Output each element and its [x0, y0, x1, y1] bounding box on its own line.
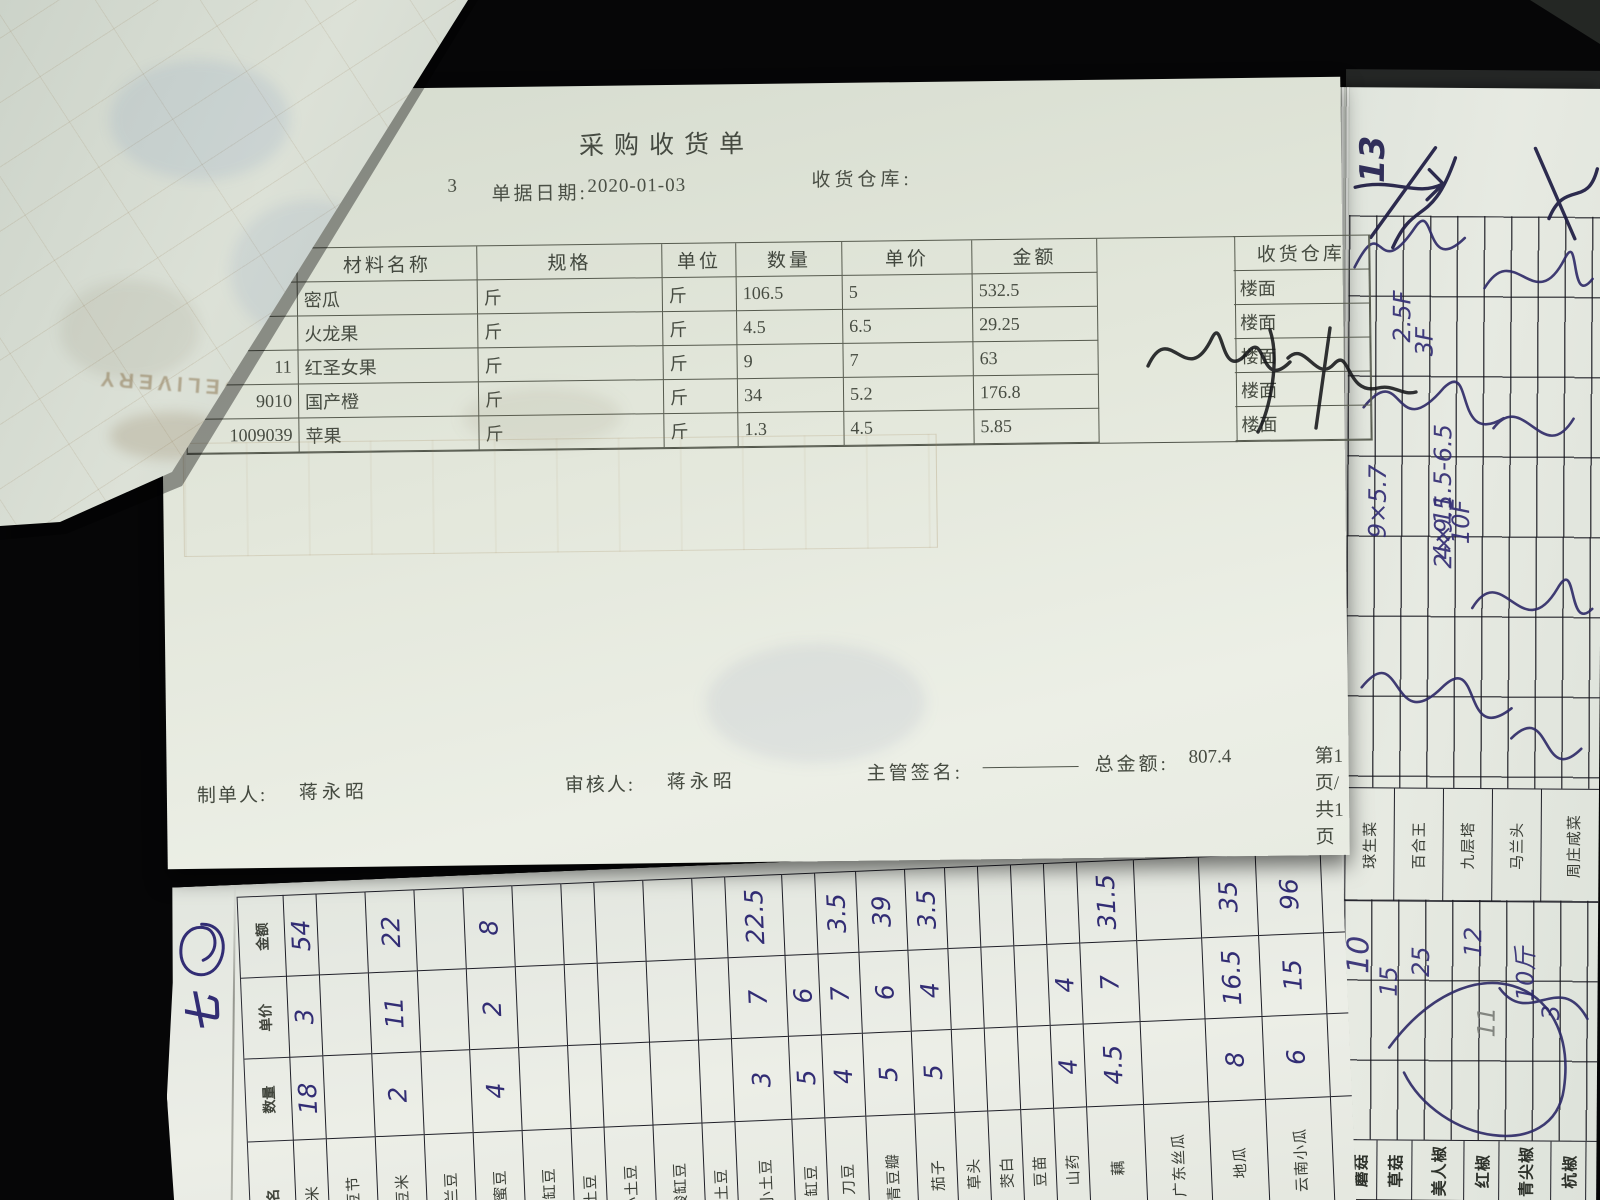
- maker-name: 蒋永昭: [299, 777, 368, 805]
- warehouse-label: 收货仓库:: [811, 164, 913, 192]
- date-label: 单据日期:: [491, 178, 588, 206]
- qty-handwriting: 4.5: [1084, 1021, 1143, 1106]
- produce-name: 青豆瓣: [881, 1152, 904, 1200]
- auditor-name: 蒋永昭: [667, 766, 736, 794]
- price-handwriting: 6: [859, 950, 910, 1033]
- produce-name: 玉米: [301, 1184, 323, 1200]
- produce-name-cell: 山药: [1055, 1106, 1092, 1200]
- qty-handwriting: [568, 1044, 603, 1128]
- produce-name: 豆苗: [1029, 1154, 1051, 1187]
- amount-handwriting: 39: [856, 869, 907, 952]
- produce-name-cell: 地瓜: [1209, 1099, 1270, 1200]
- qty-handwriting: 5: [789, 1034, 824, 1118]
- qty-handwriting: 5: [911, 1029, 954, 1114]
- produce-name: 酸缸豆: [669, 1161, 692, 1200]
- price-handwriting: [418, 968, 469, 1051]
- amount-handwriting: 22.5: [725, 874, 784, 957]
- produce-name-cell: 小土豆: [605, 1125, 658, 1200]
- signature-blank-line: [982, 752, 1078, 768]
- receipt-title: 采购收货单: [579, 124, 754, 162]
- produce-name-cell: 广东丝瓜: [1144, 1101, 1213, 1200]
- price-handwriting: 7: [818, 952, 861, 1035]
- produce-name-cell: 酸缸豆: [654, 1123, 707, 1200]
- produce-table-strips: 54 3 18 玉米 毛豆节 22 11 2 毛豆米 荷兰豆 8: [283, 851, 1351, 1200]
- produce-name: 茄子: [926, 1158, 948, 1191]
- header-warehouse: 收货仓库: [1233, 235, 1369, 271]
- qty-handwriting: 3: [732, 1036, 791, 1121]
- produce-name: 土豆: [710, 1167, 732, 1200]
- produce-name-cell: 甜蜜豆: [474, 1130, 527, 1200]
- header-unit: 单位: [662, 243, 736, 278]
- produce-name-cell: 豆苗: [1022, 1108, 1059, 1200]
- auditor-label: 审核人:: [565, 769, 636, 797]
- produce-name: 荷兰豆: [440, 1171, 463, 1200]
- cell-material: 国产橙: [299, 382, 479, 418]
- photo-of-paper-documents: 球生菜百合王九层塔马兰头周庄咸菜芦荟广东芥兰广东芥菜 蘑菇草菇美人椒红椒青尖椒杭…: [0, 0, 1600, 1200]
- qty-handwriting: [601, 1042, 652, 1127]
- cell-unit: 斤: [663, 345, 737, 380]
- price-handwriting: 15: [1259, 932, 1326, 1016]
- produce-name: 藕: [1107, 1159, 1129, 1176]
- price-handwriting: 7: [729, 955, 788, 1038]
- price-handwriting: [565, 963, 600, 1045]
- amount-handwriting: 54: [284, 893, 319, 975]
- produce-name-cell: 青豆瓣: [866, 1114, 919, 1200]
- date-value: 2020-01-03: [587, 175, 686, 198]
- header-cell-amount: 金额: [238, 895, 287, 978]
- header-amount: 金额: [972, 239, 1097, 275]
- header-cell-price: 单价: [241, 976, 290, 1059]
- amount-handwriting: [1134, 857, 1201, 941]
- produce-name-cell: 云南小瓜: [1266, 1096, 1335, 1200]
- receipt-table-body: 密瓜 斤 斤 106.5 5 532.5 火龙果 斤 斤 4.5 6.5 29.…: [186, 271, 1237, 454]
- amount-handwriting: [1011, 863, 1046, 945]
- page-indicator: 第1页/共1页: [1314, 741, 1349, 849]
- doc-number-partial: 3: [447, 176, 457, 198]
- header-qty: 数量: [736, 242, 842, 277]
- cell-amount: 63: [973, 341, 1098, 377]
- cell-material: 火龙果: [298, 314, 478, 350]
- produce-name: 毛豆米: [391, 1173, 414, 1200]
- cell-amount: 5.85: [974, 409, 1099, 445]
- amount-handwriting: 3.5: [905, 867, 948, 950]
- amount-handwriting: 31.5: [1077, 859, 1136, 942]
- qty-handwriting: [421, 1049, 472, 1134]
- supervisor-sign-label: 主管签名:: [866, 757, 963, 785]
- amount-handwriting: [945, 866, 980, 948]
- total-label: 总金额:: [1094, 749, 1169, 777]
- produce-name: 甜蜜豆: [489, 1169, 512, 1200]
- qty-handwriting: 4: [470, 1047, 521, 1132]
- cell-unit: 斤: [663, 311, 737, 346]
- cell-price: 7: [843, 342, 973, 378]
- amount-handwriting: [643, 878, 694, 961]
- qty-handwriting: [519, 1045, 570, 1130]
- cell-unit: 斤: [663, 277, 737, 312]
- cell-qty: 34: [738, 378, 844, 413]
- produce-name: 刀豆: [836, 1162, 858, 1195]
- cell-qty: 4.5: [737, 310, 843, 345]
- warehouse-header-cell: 收货仓库: [1233, 235, 1369, 271]
- amount-handwriting: 35: [1199, 854, 1258, 937]
- header-cell-qty: 数量: [244, 1057, 293, 1142]
- price-handwriting: [516, 964, 567, 1047]
- cell-amount: 176.8: [974, 375, 1099, 411]
- amount-handwriting: [317, 891, 368, 974]
- amount-handwriting: [692, 876, 727, 958]
- cell-spec: 斤: [478, 278, 663, 314]
- produce-name-cell: 毛豆米: [376, 1134, 429, 1200]
- price-handwriting: [647, 959, 698, 1042]
- produce-name-cell: 荷兰豆: [425, 1132, 478, 1200]
- bottom-handwritten-sheet: 七 金额 单价 数量 品名 54 3 18 玉米 毛豆节 22: [158, 839, 1357, 1200]
- amount-handwriting: [978, 864, 1013, 946]
- cell-material: 红圣女果: [298, 348, 478, 384]
- price-handwriting: [598, 961, 649, 1044]
- produce-name: 缸豆: [800, 1164, 822, 1197]
- price-handwriting: [1015, 944, 1050, 1026]
- produce-name-cell: 茄子: [915, 1112, 960, 1200]
- produce-name: 云南小瓜: [1288, 1127, 1312, 1192]
- cell-qty: 9: [737, 344, 843, 379]
- margin-note-handwriting: 七: [180, 986, 220, 1043]
- cell-amount: 29.25: [973, 307, 1098, 343]
- produce-name: 山药: [1062, 1153, 1084, 1186]
- amount-handwriting: [414, 887, 465, 970]
- price-handwriting: 4: [908, 948, 951, 1031]
- amount-handwriting: 96: [1255, 851, 1322, 935]
- total-value: 807.4: [1188, 746, 1231, 769]
- qty-handwriting: 18: [290, 1055, 325, 1139]
- produce-name: 地瓜: [1228, 1146, 1250, 1179]
- price-handwriting: 6: [785, 954, 820, 1036]
- price-handwriting: 11: [369, 970, 420, 1053]
- circled-scribble: [171, 915, 234, 987]
- produce-name-cell: 刀豆: [825, 1116, 870, 1200]
- bleed-through-ghost-table: [183, 434, 938, 557]
- qty-handwriting: [699, 1038, 734, 1122]
- qty-handwriting: 4: [822, 1033, 865, 1118]
- produce-name: 小土豆: [620, 1163, 643, 1200]
- qty-handwriting: [952, 1028, 987, 1112]
- produce-name: 酸缸豆: [538, 1167, 561, 1200]
- cell-unit: 斤: [664, 379, 738, 414]
- produce-name-cell: 酸缸豆: [523, 1128, 576, 1200]
- produce-name-cell: 毛豆节: [327, 1136, 380, 1200]
- background-paper-corner: [1530, 0, 1600, 44]
- receipt-table: 材料名称 规格 单位 数量 单价 金额 密瓜 斤 斤 106.5 5 532.5…: [184, 236, 1237, 455]
- ink-bleed-blot: [110, 60, 290, 180]
- qty-handwriting: [1018, 1025, 1053, 1109]
- qty-handwriting: 8: [1206, 1016, 1265, 1101]
- qty-handwriting: [323, 1053, 374, 1138]
- produce-name: 草头: [963, 1157, 985, 1190]
- price-handwriting: 3: [287, 974, 322, 1056]
- qty-handwriting: 4: [1051, 1023, 1086, 1107]
- price-handwriting: 7: [1081, 940, 1140, 1023]
- amount-handwriting: 22: [365, 889, 416, 972]
- produce-name-cell: 小土豆: [736, 1119, 797, 1200]
- cell-amount: 532.5: [973, 273, 1098, 309]
- price-handwriting: [949, 947, 984, 1029]
- price-handwriting: 16.5: [1202, 935, 1261, 1018]
- handwritten-signature: [1120, 300, 1420, 460]
- header-spec: 规格: [477, 244, 662, 280]
- cell-price: 5.2: [844, 376, 974, 412]
- produce-name: 广东丝瓜: [1167, 1132, 1191, 1197]
- qty-handwriting: [985, 1026, 1020, 1110]
- qty-handwriting: 6: [1262, 1013, 1329, 1099]
- qty-handwriting: 2: [372, 1051, 423, 1136]
- amount-handwriting: [594, 880, 645, 963]
- price-handwriting: 4: [1048, 943, 1083, 1025]
- cell-qty: 106.5: [737, 276, 843, 311]
- produce-name: 毛豆节: [342, 1175, 365, 1200]
- produce-name-cell: 藕: [1088, 1104, 1149, 1200]
- header-cell-name: 品名: [248, 1140, 299, 1200]
- cell-price: 6.5: [843, 308, 973, 344]
- maker-label: 制单人:: [197, 780, 268, 808]
- amount-handwriting: [782, 873, 817, 955]
- produce-name: 小土豆: [754, 1157, 777, 1200]
- cell-price: 5: [843, 274, 973, 310]
- cell-spec: 斤: [478, 312, 663, 348]
- amount-handwriting: [512, 883, 563, 966]
- qty-handwriting: 5: [862, 1031, 913, 1116]
- price-handwriting: [696, 957, 731, 1039]
- price-handwriting: [1137, 937, 1204, 1021]
- ink-smear: [705, 642, 926, 765]
- header-price: 单价: [842, 240, 972, 276]
- cell-material: 密瓜: [298, 280, 478, 316]
- price-handwriting: [982, 945, 1017, 1027]
- price-handwriting: 2: [467, 966, 518, 1049]
- amount-handwriting: [561, 882, 596, 964]
- qty-handwriting: [650, 1040, 701, 1125]
- cell-spec: 斤: [478, 346, 663, 382]
- produce-name: 茭白: [996, 1155, 1018, 1188]
- amount-handwriting: 3.5: [815, 871, 858, 954]
- price-handwriting: [320, 972, 371, 1055]
- amount-handwriting: [1044, 862, 1079, 944]
- produce-name: 土豆: [579, 1173, 601, 1200]
- amount-handwriting: 8: [463, 885, 514, 968]
- qty-handwriting: [1141, 1018, 1208, 1104]
